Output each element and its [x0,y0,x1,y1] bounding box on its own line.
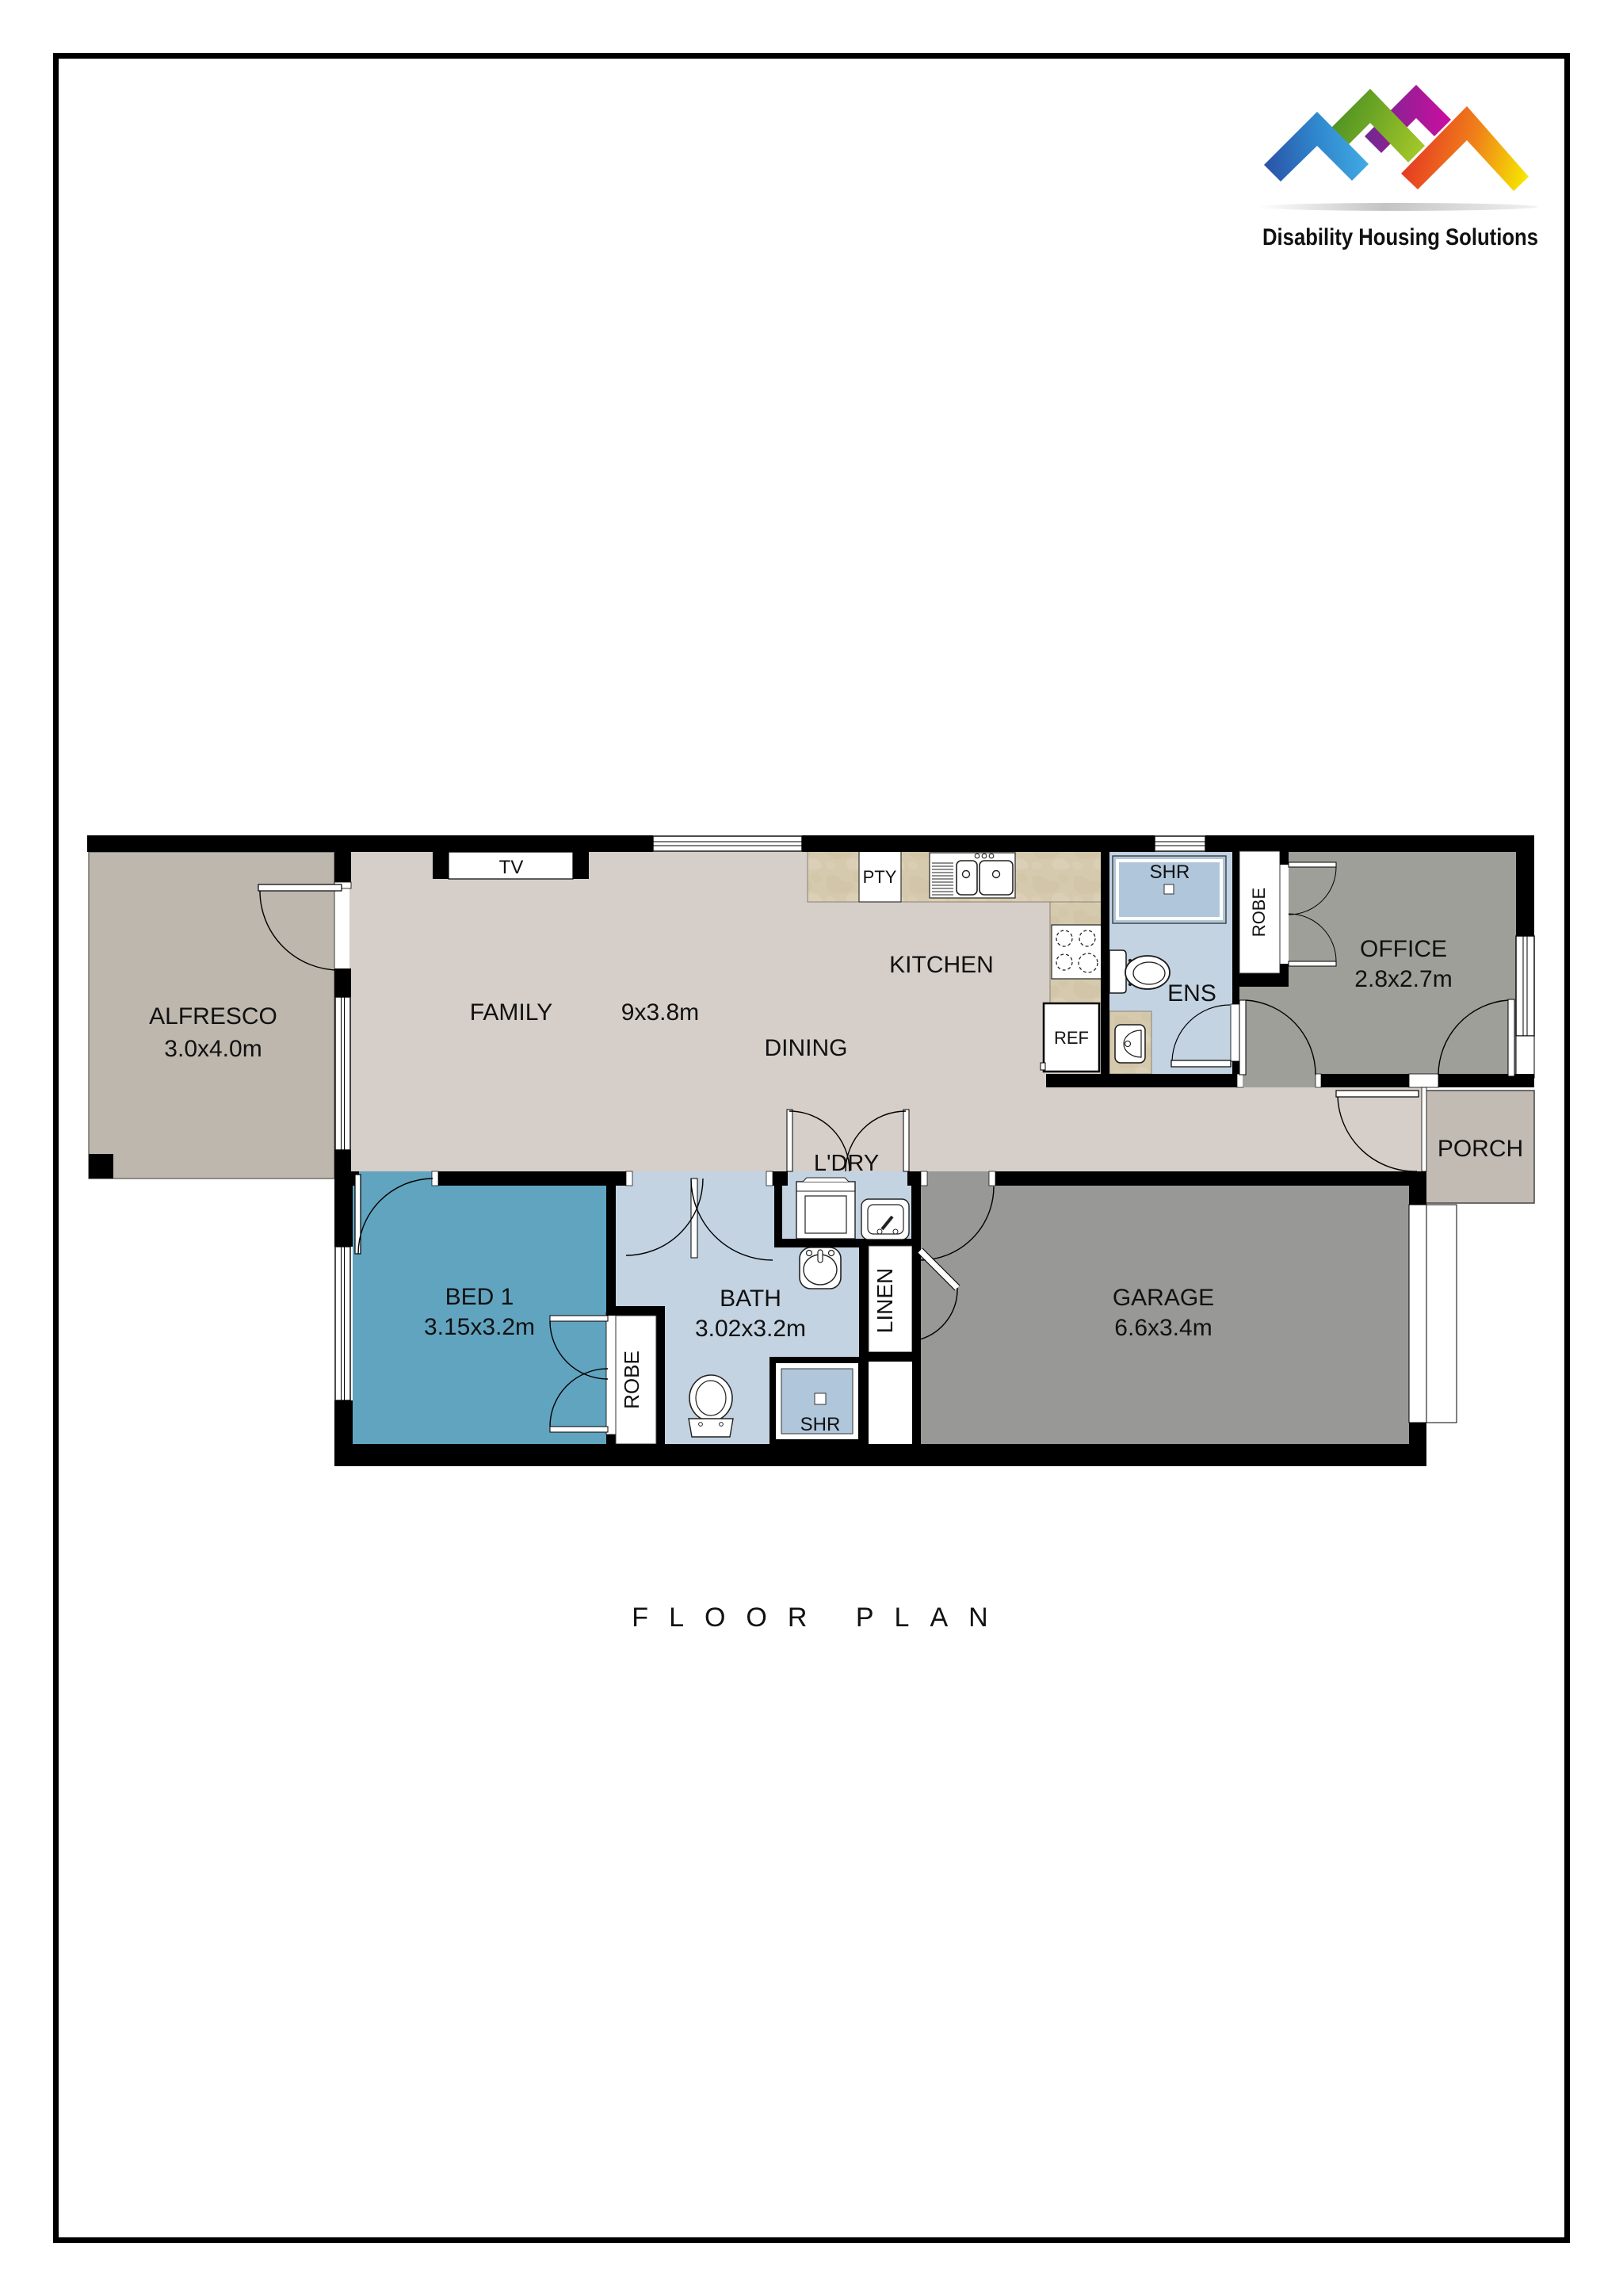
svg-text:3.0x4.0m: 3.0x4.0m [164,1036,262,1062]
svg-text:2.8x2.7m: 2.8x2.7m [1354,966,1452,992]
svg-text:ALFRESCO: ALFRESCO [149,1003,277,1030]
svg-text:SHR: SHR [800,1414,841,1435]
svg-text:PORCH: PORCH [1438,1136,1523,1162]
svg-text:BED 1: BED 1 [445,1284,514,1310]
svg-text:GARAGE: GARAGE [1113,1285,1214,1311]
svg-text:6.6x3.4m: 6.6x3.4m [1114,1315,1212,1341]
svg-text:L'DRY: L'DRY [814,1151,879,1176]
svg-text:ENS: ENS [1167,980,1216,1007]
svg-text:PTY: PTY [863,867,897,887]
svg-text:BATH: BATH [720,1286,781,1312]
svg-text:SHR: SHR [1150,861,1190,883]
svg-text:3.02x3.2m: 3.02x3.2m [695,1316,806,1342]
svg-text:FAMILY: FAMILY [470,999,552,1026]
svg-text:LINEN: LINEN [873,1268,897,1333]
svg-text:KITCHEN: KITCHEN [889,952,994,978]
svg-text:ROBE: ROBE [1249,888,1269,937]
svg-text:Disability Housing Solutions: Disability Housing Solutions [1262,224,1538,250]
svg-text:ROBE: ROBE [620,1350,643,1409]
svg-text:DINING: DINING [765,1035,848,1061]
svg-text:FLOOR PLAN: FLOOR PLAN [632,1603,1008,1633]
svg-text:REF: REF [1054,1028,1089,1048]
svg-text:3.15x3.2m: 3.15x3.2m [424,1314,535,1340]
svg-text:TV: TV [499,857,524,878]
svg-text:OFFICE: OFFICE [1360,936,1447,962]
svg-text:9x3.8m: 9x3.8m [621,999,699,1026]
